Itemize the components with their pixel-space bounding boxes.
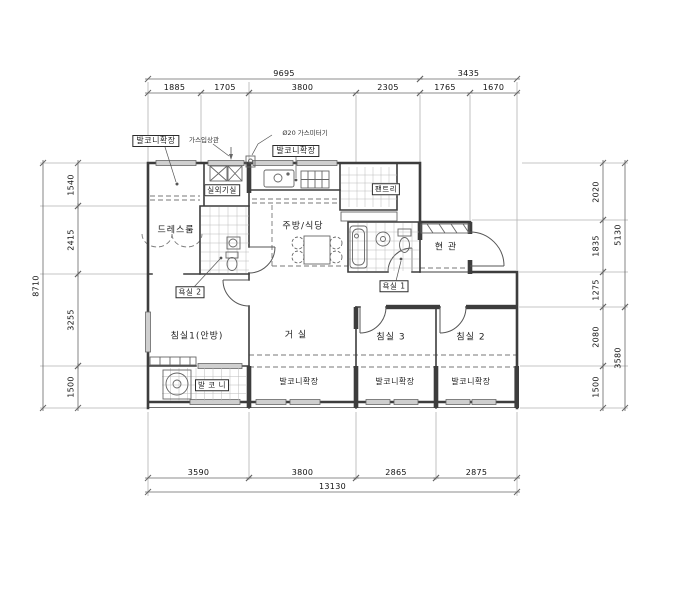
dim-right_outer-5130: 5130	[614, 224, 623, 246]
floor-plan-canvas: 9695343518851705380023051765167035903800…	[0, 0, 700, 592]
label-kitchen-dining: 주방/식당	[282, 223, 323, 232]
label-bedroom2: 침실 2	[456, 334, 485, 343]
dim-right_inner-1275: 1275	[592, 279, 601, 301]
dim-top_inner-1765: 1765	[434, 83, 456, 92]
dim-right_inner-2080: 2080	[592, 326, 601, 348]
dim-left_outer-8710: 8710	[32, 275, 41, 297]
dim-top_inner-2305: 2305	[377, 83, 399, 92]
label-outdoor-unit-room: 실외기실	[204, 184, 240, 196]
label-gas-meter-note: Ø20 가스미터기	[282, 130, 327, 137]
dim-bottom_outer-13130: 13130	[319, 482, 346, 491]
label-dress-room: 드레스룸	[157, 227, 194, 236]
dim-right_inner-1835: 1835	[592, 235, 601, 257]
dim-bottom_inner-2875: 2875	[466, 468, 488, 477]
label-gas-riser-note: 가스입상관	[189, 137, 219, 144]
label-bath2: 욕실 2	[176, 286, 205, 298]
dim-left_inner-3255: 3255	[67, 309, 76, 331]
dim-right_outer-3580: 3580	[614, 347, 623, 369]
dim-bottom_inner-3590: 3590	[188, 468, 210, 477]
dim-right_inner-2020: 2020	[592, 181, 601, 203]
label-balcony: 발 코 니	[195, 379, 229, 391]
dim-top_outer-9695: 9695	[273, 69, 295, 78]
label-balcony-ext-bed3: 발코니확장	[375, 378, 414, 386]
text-layer: 9695343518851705380023051765167035903800…	[0, 0, 700, 592]
label-bedroom3: 침실 3	[376, 334, 405, 343]
label-balcony-ext-kitchen: 발코니확장	[272, 145, 319, 157]
dim-left_inner-1500: 1500	[67, 376, 76, 398]
dim-top_inner-3800: 3800	[292, 83, 314, 92]
label-bath1: 욕실 1	[380, 280, 409, 292]
label-balcony-ext-bed2: 발코니확장	[451, 378, 490, 386]
label-living: 거 실	[285, 332, 307, 341]
dim-top_outer-3435: 3435	[458, 69, 480, 78]
label-entrance: 현 관	[435, 244, 457, 253]
dim-top_inner-1705: 1705	[214, 83, 236, 92]
dim-bottom_inner-3800: 3800	[292, 468, 314, 477]
dim-right_inner-1500: 1500	[592, 376, 601, 398]
label-pantry: 팬트리	[372, 183, 400, 195]
dim-bottom_inner-2865: 2865	[385, 468, 407, 477]
label-balcony-ext-living: 발코니확장	[279, 378, 318, 386]
dim-left_inner-2415: 2415	[67, 229, 76, 251]
dim-top_inner-1885: 1885	[164, 83, 186, 92]
dim-top_inner-1670: 1670	[483, 83, 505, 92]
label-balcony-ext-topleft: 발코니확장	[132, 135, 179, 147]
label-bedroom1: 침실1(안방)	[171, 333, 224, 342]
dim-left_inner-1540: 1540	[67, 174, 76, 196]
